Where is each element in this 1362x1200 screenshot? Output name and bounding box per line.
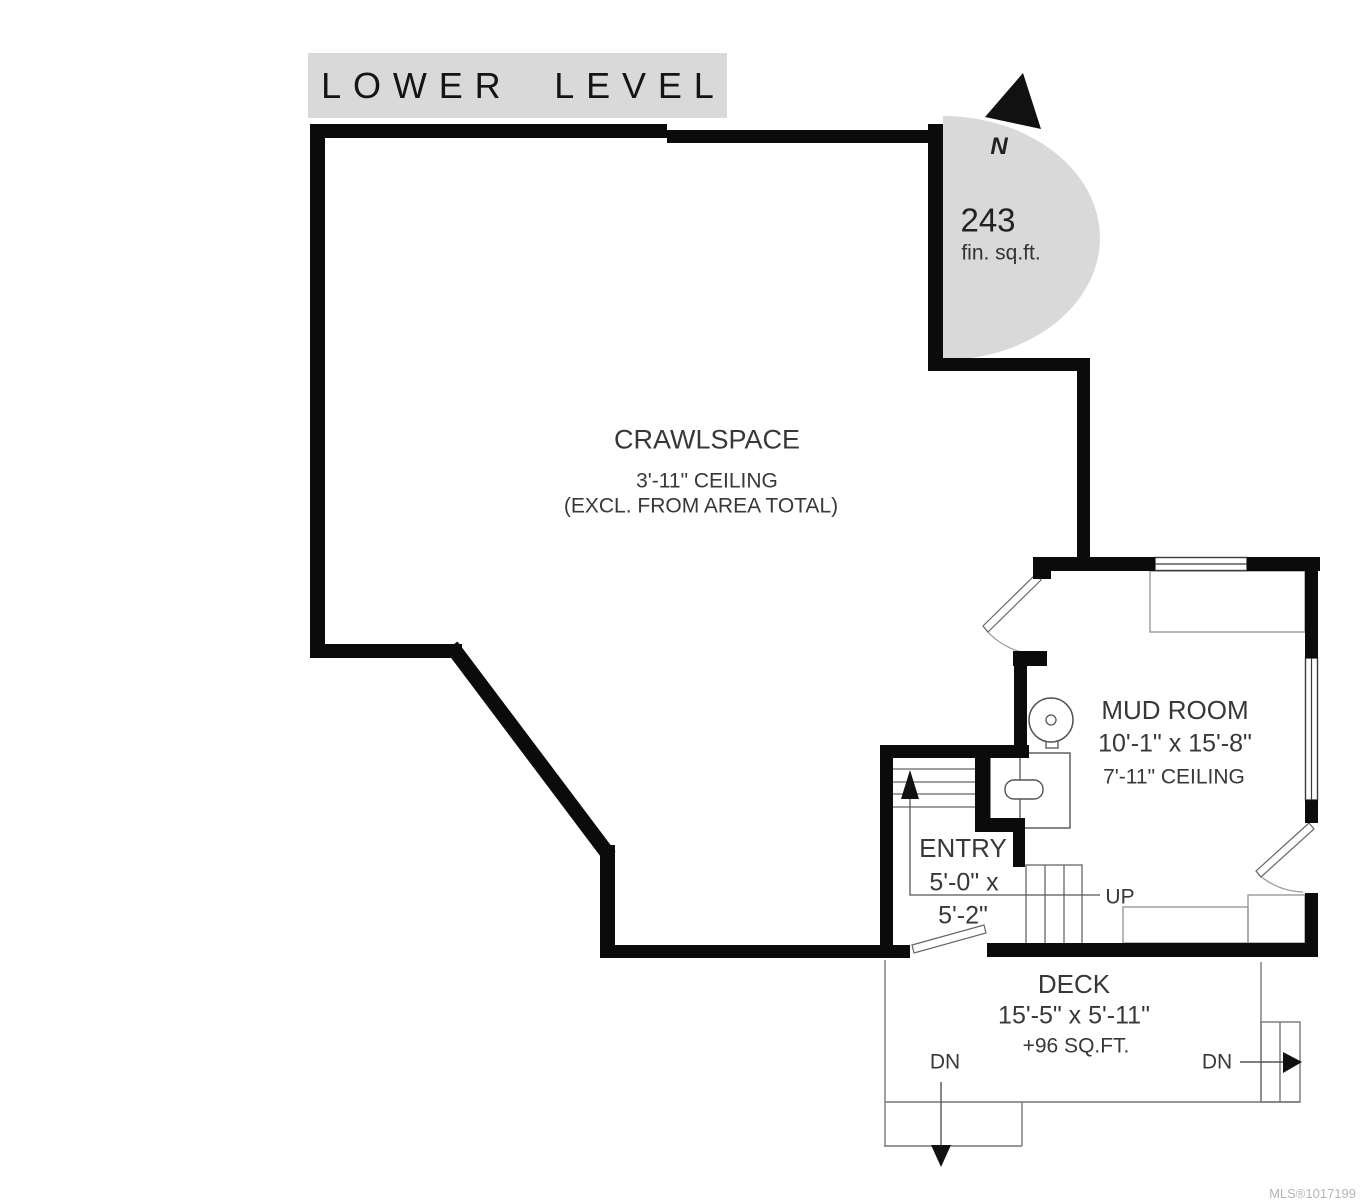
mudroom-name: MUD ROOM <box>1101 697 1248 723</box>
wall-diagonal <box>456 652 605 850</box>
wall-step <box>928 358 1090 371</box>
wall-mud-bottom <box>987 943 1318 957</box>
walls <box>310 124 1320 958</box>
north-arrow-icon <box>985 73 1041 129</box>
wall-entry-top <box>880 745 1029 758</box>
mudroom-deck-door-swing <box>1258 874 1303 892</box>
wall-crawl-right <box>928 124 943 371</box>
up-arrow-icon <box>901 770 919 799</box>
crawlspace-name: CRAWLSPACE <box>614 427 800 454</box>
entry-dimensions-2: 5'-2" <box>938 904 988 929</box>
wall-mud-right-upper <box>1305 557 1318 658</box>
wall-mud-top-west <box>1033 557 1155 571</box>
floor-plan: LOWER LEVEL N 243 fin. sq.ft. CRAWLSPACE… <box>0 0 1362 1200</box>
wall-crawl-mud <box>1077 358 1090 571</box>
entry-dimensions-1: 5'-0" x <box>929 871 998 896</box>
plan-title: LOWER LEVEL <box>308 53 727 118</box>
mls-watermark: MLS®1017199 <box>1269 1186 1356 1200</box>
deck-dimensions: 15'-5" x 5'-11" <box>998 1004 1150 1029</box>
wall-lower-left <box>600 845 615 958</box>
wall-mud-right-mid <box>1305 800 1318 823</box>
bench-right <box>1248 895 1305 943</box>
windows <box>1155 558 1318 801</box>
up-staircase <box>1026 865 1082 945</box>
dn-left-label: DN <box>930 1052 960 1073</box>
wall-entry-left <box>880 745 893 958</box>
closet-builtin <box>1150 571 1305 632</box>
mudroom-deck-door-leaf <box>1256 823 1314 877</box>
wall-bottom-west <box>600 945 910 958</box>
wall-door-nub <box>1033 557 1051 579</box>
water-tank-center <box>1046 715 1056 725</box>
up-label: UP <box>1105 887 1134 908</box>
mudroom-crawl-door-leaf <box>983 574 1041 632</box>
mudroom-dimensions: 10'-1" x 15'-8" <box>1098 732 1252 757</box>
wall-top-west <box>310 124 667 138</box>
compass-north-label: N <box>990 135 1007 159</box>
mudroom-ceiling: 7'-11" CEILING <box>1103 767 1245 788</box>
crawlspace-note: (EXCL. FROM AREA TOTAL) <box>564 496 838 517</box>
wall-bottom-left <box>310 644 462 658</box>
deck-area: +96 SQ.FT. <box>1023 1036 1130 1057</box>
floor-plan-drawing <box>0 0 1362 1200</box>
wall-entry-inner-v2 <box>1013 818 1025 867</box>
area-badge-value: 243 <box>960 204 1015 237</box>
wall-left <box>310 124 325 658</box>
sink-basin <box>1005 780 1043 799</box>
down-arrows <box>931 1052 1302 1167</box>
crawlspace-ceiling: 3'-11" CEILING <box>636 471 778 492</box>
dn-left-arrow-icon <box>931 1145 951 1167</box>
dn-right-arrow-icon <box>1283 1052 1302 1073</box>
area-badge-unit: fin. sq.ft. <box>961 243 1040 264</box>
dn-right-label: DN <box>1202 1052 1232 1073</box>
wall-top-east <box>667 130 943 143</box>
entry-name: ENTRY <box>919 835 1007 861</box>
wall-fixture <box>1014 651 1027 753</box>
mudroom-crawl-door-swing <box>986 630 1021 652</box>
bench-left <box>1123 907 1248 943</box>
deck-name: DECK <box>1038 971 1110 997</box>
